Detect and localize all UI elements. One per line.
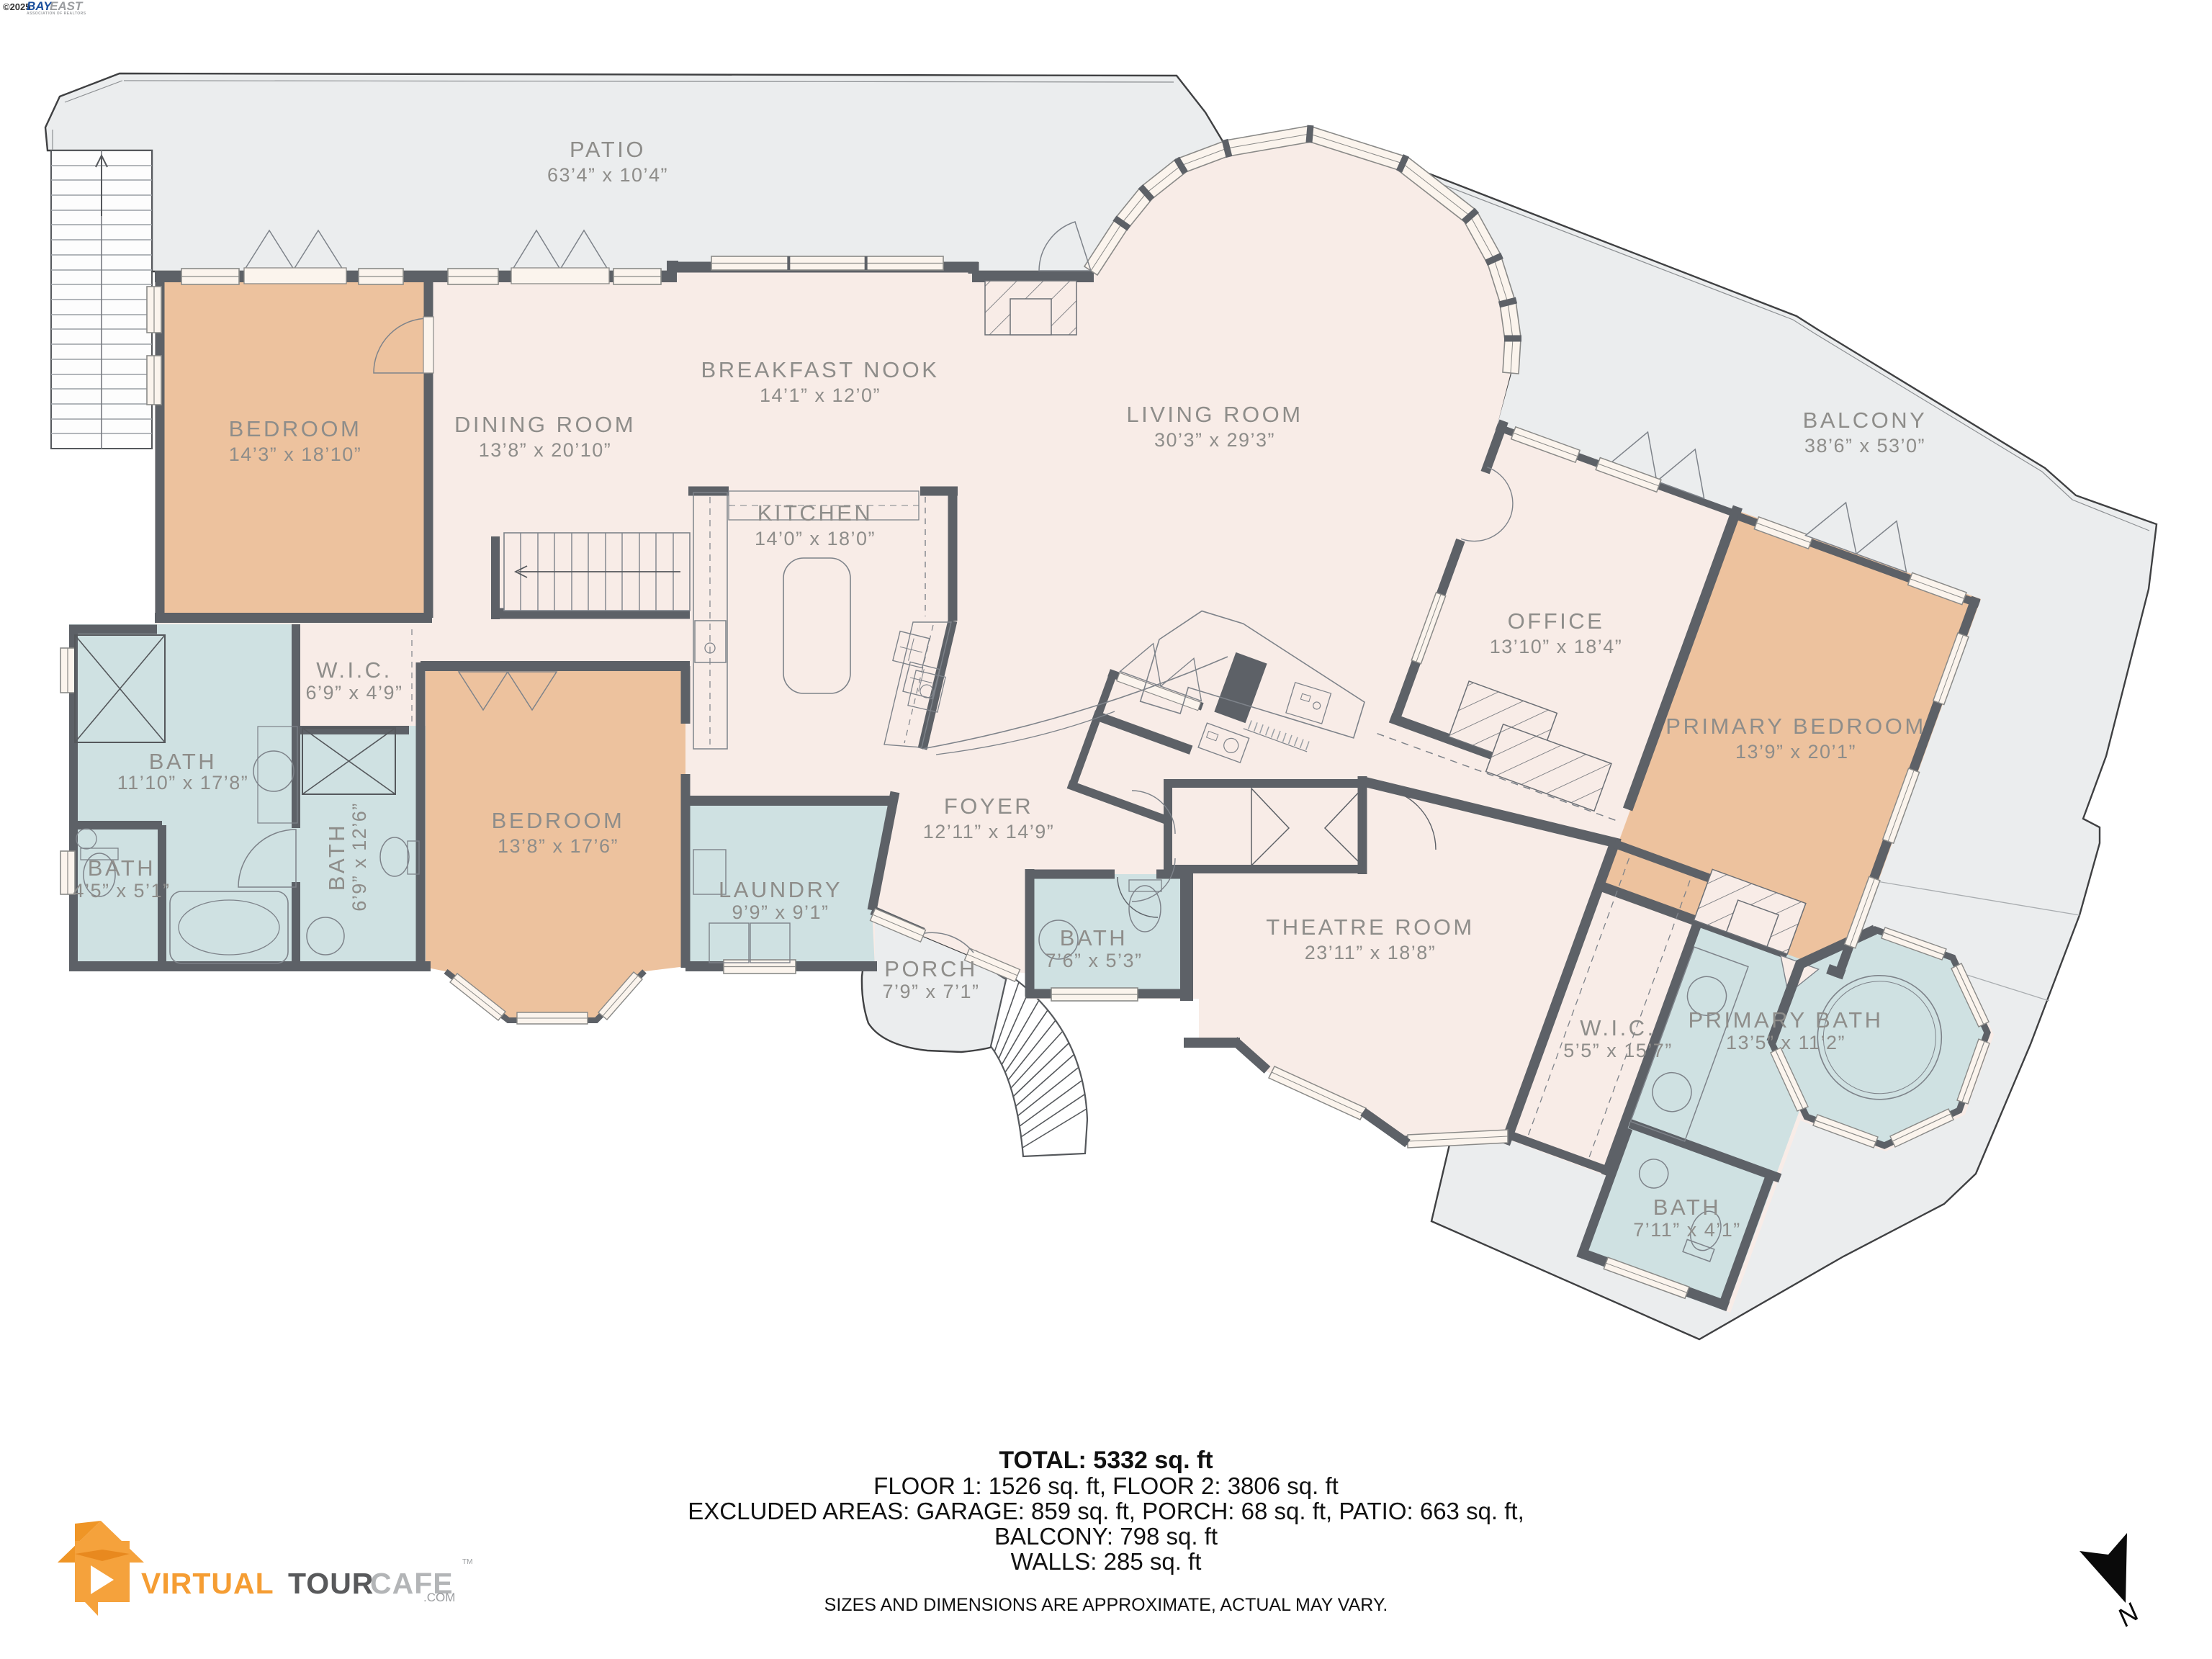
- svg-text:BATH: BATH: [149, 749, 217, 774]
- svg-text:ASSOCIATION OF REALTORS: ASSOCIATION OF REALTORS: [27, 12, 86, 16]
- svg-text:VIRTUAL: VIRTUAL: [141, 1567, 274, 1600]
- svg-text:SIZES AND DIMENSIONS ARE APPRO: SIZES AND DIMENSIONS ARE APPROXIMATE, AC…: [824, 1595, 1388, 1615]
- svg-text:7’6” x 5’3”: 7’6” x 5’3”: [1045, 950, 1142, 971]
- svg-text:PRIMARY BEDROOM: PRIMARY BEDROOM: [1665, 714, 1925, 739]
- svg-text:63’4” x 10’4”: 63’4” x 10’4”: [547, 164, 668, 186]
- svg-text:KITCHEN: KITCHEN: [757, 500, 873, 526]
- svg-text:TM: TM: [462, 1558, 472, 1566]
- svg-text:FLOOR 1: 1526 sq. ft, FLOOR 2:: FLOOR 1: 1526 sq. ft, FLOOR 2: 3806 sq. …: [873, 1473, 1339, 1499]
- svg-text:7’9” x 7’1”: 7’9” x 7’1”: [882, 981, 979, 1002]
- svg-text:BEDROOM: BEDROOM: [229, 416, 362, 441]
- svg-text:.COM: .COM: [423, 1591, 455, 1604]
- svg-text:5’5” x 15’7”: 5’5” x 15’7”: [1563, 1040, 1673, 1061]
- svg-text:14’1” x 12’0”: 14’1” x 12’0”: [760, 385, 881, 406]
- svg-text:LIVING ROOM: LIVING ROOM: [1126, 402, 1303, 427]
- svg-text:13’8” x 17’6”: 13’8” x 17’6”: [498, 835, 619, 857]
- svg-text:BATH: BATH: [1653, 1195, 1721, 1220]
- svg-text:TOUR: TOUR: [288, 1567, 374, 1600]
- svg-text:BATH: BATH: [1060, 925, 1128, 950]
- svg-text:BEDROOM: BEDROOM: [492, 808, 625, 833]
- svg-text:THEATRE ROOM: THEATRE ROOM: [1266, 914, 1474, 940]
- svg-text:7’11” x 4’1”: 7’11” x 4’1”: [1633, 1219, 1741, 1241]
- svg-text:FOYER: FOYER: [944, 793, 1033, 819]
- svg-text:9’9” x 9’1”: 9’9” x 9’1”: [732, 902, 829, 923]
- svg-text:PATIO: PATIO: [570, 137, 646, 162]
- svg-text:14’0” x 18’0”: 14’0” x 18’0”: [755, 528, 876, 549]
- svg-text:30’3” x 29’3”: 30’3” x 29’3”: [1154, 429, 1275, 451]
- svg-text:TOTAL: 5332 sq. ft: TOTAL: 5332 sq. ft: [999, 1447, 1213, 1474]
- svg-text:BALCONY: BALCONY: [1803, 408, 1928, 433]
- svg-text:PRIMARY BATH: PRIMARY BATH: [1688, 1007, 1883, 1033]
- svg-text:LAUNDRY: LAUNDRY: [719, 877, 842, 902]
- svg-text:BREAKFAST NOOK: BREAKFAST NOOK: [701, 357, 940, 382]
- svg-text:BALCONY: 798 sq. ft: BALCONY: 798 sq. ft: [994, 1523, 1218, 1550]
- svg-text:6’9” x 4’9”: 6’9” x 4’9”: [305, 682, 403, 703]
- svg-text:6’9” x 12’6”: 6’9” x 12’6”: [349, 802, 370, 912]
- svg-text:W.I.C.: W.I.C.: [316, 657, 392, 683]
- svg-text:23’11” x 18’8”: 23’11” x 18’8”: [1305, 942, 1437, 963]
- svg-text:W.I.C.: W.I.C.: [1580, 1015, 1655, 1040]
- svg-text:EXCLUDED AREAS: GARAGE: 859 sq: EXCLUDED AREAS: GARAGE: 859 sq. ft, PORC…: [688, 1498, 1524, 1524]
- svg-text:PORCH: PORCH: [884, 956, 977, 981]
- svg-text:BATH: BATH: [88, 855, 156, 881]
- svg-text:12’11” x 14’9”: 12’11” x 14’9”: [923, 821, 1055, 842]
- svg-text:13’10” x 18’4”: 13’10” x 18’4”: [1490, 636, 1623, 657]
- svg-text:14’3” x 18’10”: 14’3” x 18’10”: [229, 444, 362, 465]
- svg-text:13’9” x 20’1”: 13’9” x 20’1”: [1735, 741, 1856, 763]
- svg-text:13’8” x 20’10”: 13’8” x 20’10”: [479, 439, 612, 461]
- svg-text:OFFICE: OFFICE: [1508, 608, 1605, 634]
- svg-text:WALLS: 285 sq. ft: WALLS: 285 sq. ft: [1011, 1548, 1202, 1575]
- svg-text:BATH: BATH: [324, 823, 349, 891]
- svg-text:DINING ROOM: DINING ROOM: [454, 412, 636, 437]
- svg-text:38’6” x 53’0”: 38’6” x 53’0”: [1804, 435, 1925, 457]
- svg-text:11’10” x 17’8”: 11’10” x 17’8”: [117, 772, 249, 793]
- svg-text:4’5” x 5’1”: 4’5” x 5’1”: [73, 880, 170, 902]
- svg-text:13’5” x 11’2”: 13’5” x 11’2”: [1726, 1032, 1845, 1053]
